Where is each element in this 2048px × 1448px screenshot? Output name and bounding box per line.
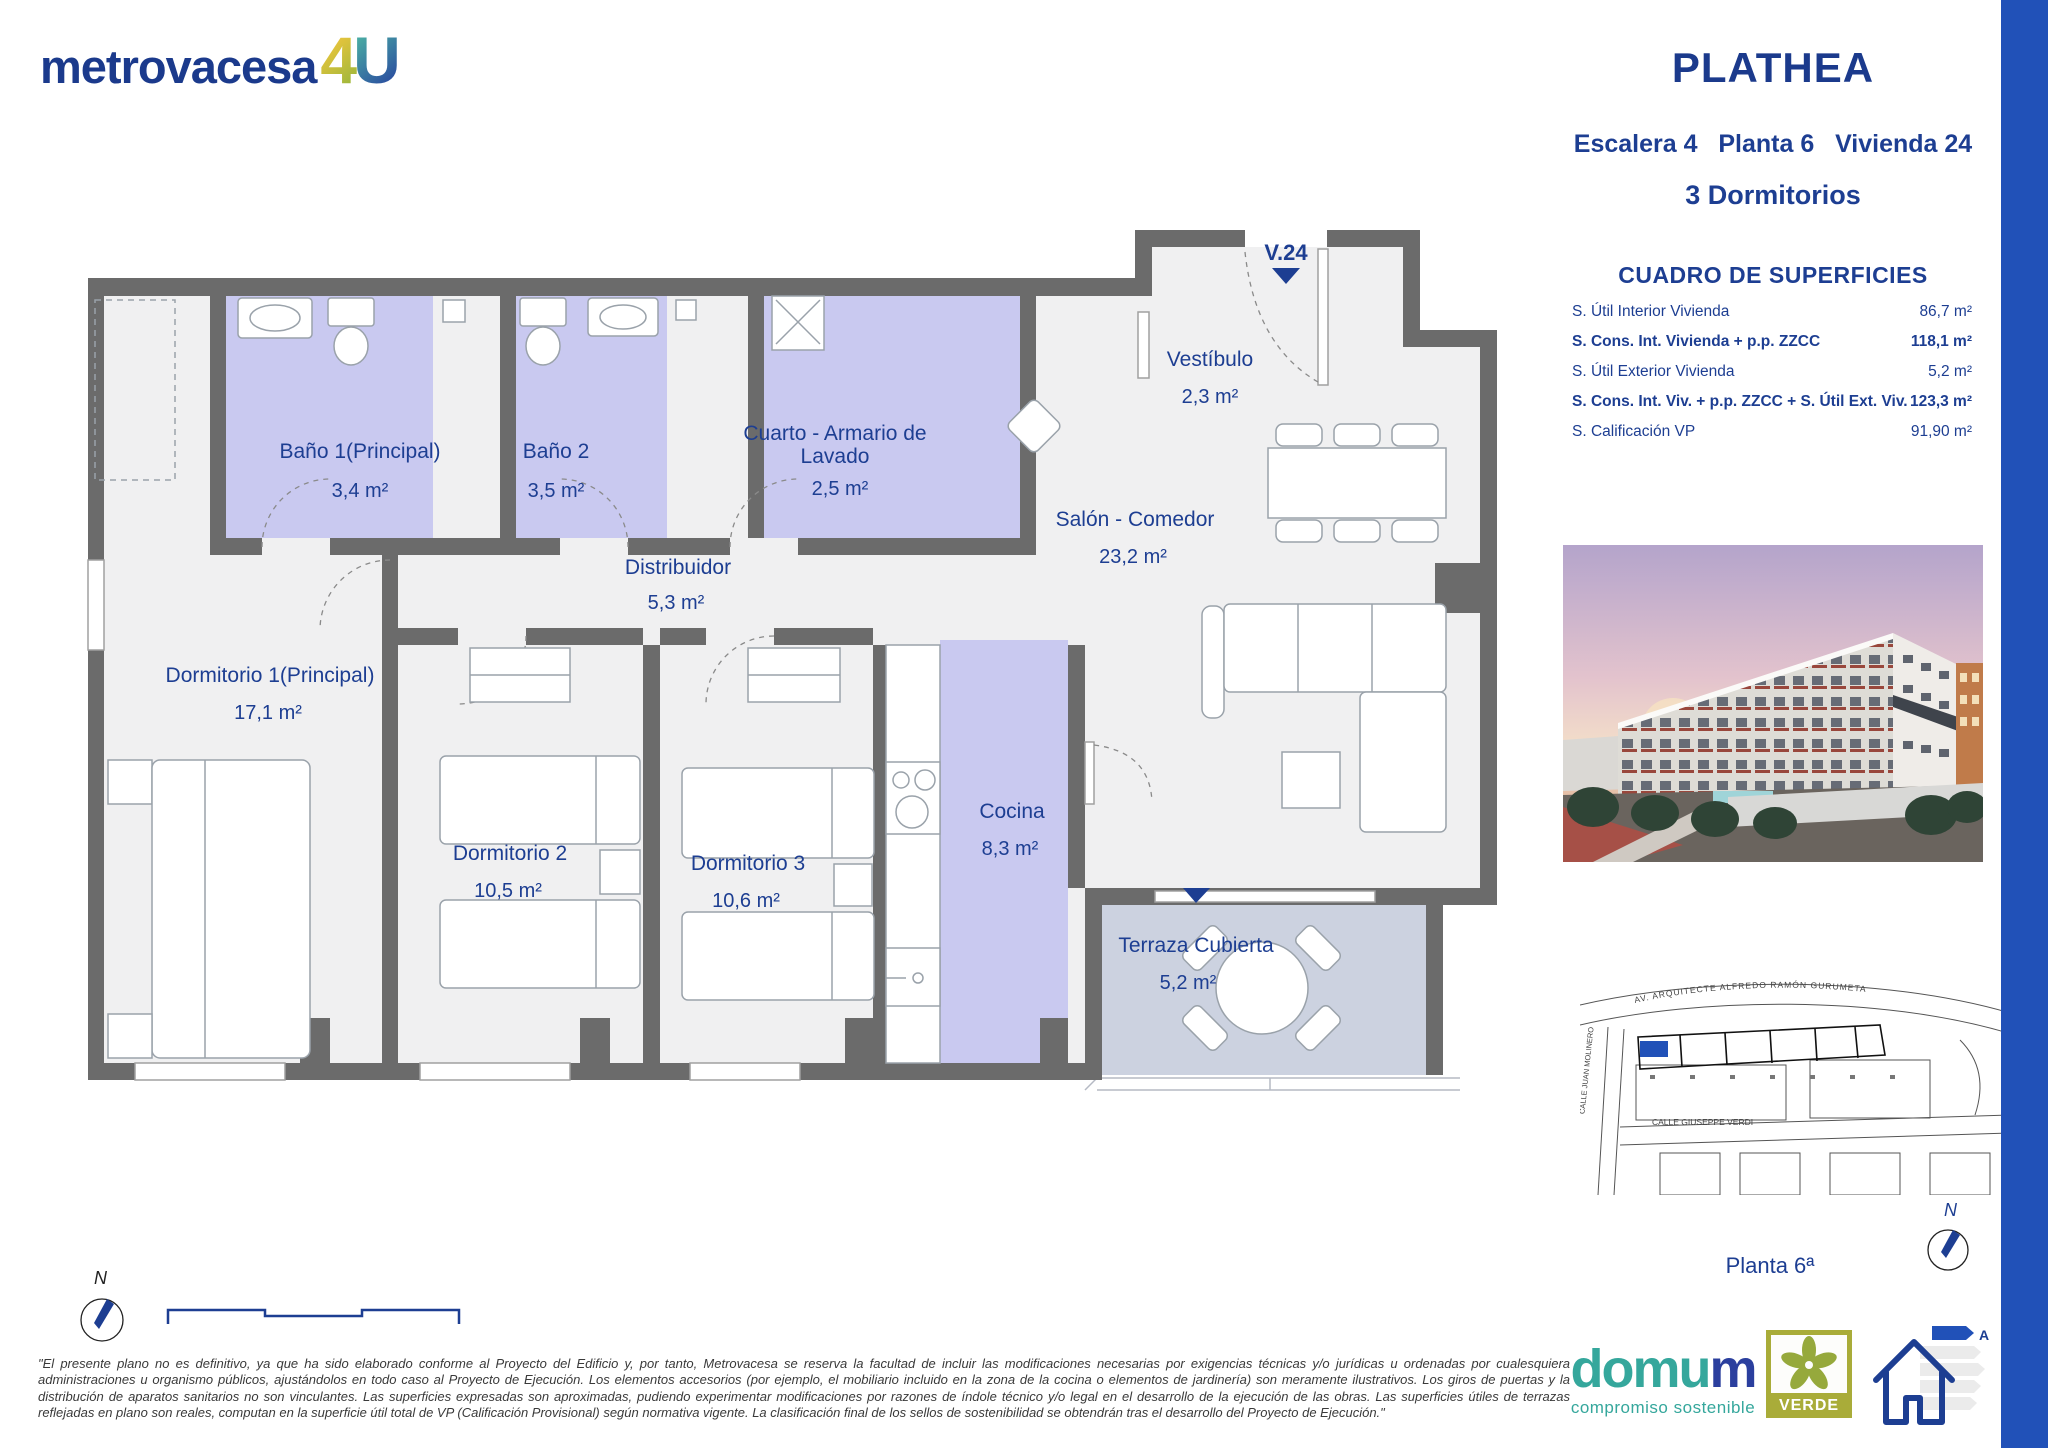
metrovacesa-logo: metrovacesa4U [40,22,401,98]
shower-drain [676,300,696,320]
legal-disclaimer: "El presente plano no es definitivo, ya … [38,1356,1570,1421]
logo-wordmark: metrovacesa [40,39,316,94]
street-label-left: CALLE JUAN MOLINERO [1580,1026,1596,1114]
coffee-table [1282,752,1340,808]
unit-identifier: Escalera 4 Planta 6 Vivienda 24 [1552,130,1994,159]
north-compass: N [1920,1200,1980,1280]
unit-highlight [1640,1041,1668,1057]
room-label-bedroom3: Dormitorio 3 [691,852,805,876]
surfaces-table-title: CUADRO DE SUPERFICIES [1572,262,1974,289]
building-photo [1563,545,1983,862]
room-area-kitchen: 8,3 m² [982,838,1039,861]
logo-u: U [353,22,401,98]
nightstand [108,760,152,804]
room-area-hall: 2,3 m² [1182,386,1239,409]
room-area-corridor: 5,3 m² [648,592,705,615]
svg-text:AV. ARQUITECTE ALFREDO RAMÓN G: AV. ARQUITECTE ALFREDO RAMÓN GURUMETA [1633,980,1867,1005]
room-area-living: 23,2 m² [1099,546,1167,569]
chair [1392,520,1438,542]
room-area-bedroom1: 17,1 m² [234,702,302,725]
logo-4: 4 [320,22,357,98]
room-area-bath1: 3,4 m² [332,480,389,503]
chair [1334,424,1380,446]
entry-door-label: V.24 [1264,240,1307,266]
surface-row: S. Calificación VP91,90 m² [1572,423,1974,445]
window-bedroom2 [420,1063,570,1080]
room-label-laundry: Cuarto - Armario de Lavado [728,422,942,468]
shower-drain [443,300,465,322]
floor-label: Planta 6ª [1660,1253,1880,1279]
north-label: N [94,1268,108,1288]
entry-door-leaf [1318,249,1328,385]
room-label-hall: Vestíbulo [1167,348,1253,372]
bed-single [440,900,640,988]
verde-leaf-icon [1771,1335,1847,1393]
room-area-bedroom3: 10,6 m² [712,890,780,913]
street-label-bottom: CALLE GIUSEPPE VERDI [1652,1117,1753,1127]
bedrooms-count: 3 Dormitorios [1572,180,1974,211]
sofa [1224,604,1446,692]
room-area-laundry: 2,5 m² [812,478,869,501]
toilet [328,298,374,326]
scale-bar [165,1298,475,1330]
room-label-living: Salón - Comedor [1056,508,1215,532]
surface-row: S. Útil Exterior Vivienda5,2 m² [1572,363,1974,385]
room-label-bedroom2: Dormitorio 2 [453,842,567,866]
north-label: N [1944,1200,1958,1220]
side-accent-bar [2001,0,2048,1448]
dining-table [1268,448,1446,518]
kitchen-door-leaf [1085,742,1094,804]
room-label-corridor: Distribuidor [625,556,731,580]
surface-row: S. Útil Interior Vivienda86,7 m² [1572,303,1974,325]
bed-double [152,760,310,1058]
room-label-terrace: Terraza Cubierta [1118,934,1273,958]
room-area-bedroom2: 10,5 m² [474,880,542,903]
room-area-terrace: 5,2 m² [1160,972,1217,995]
sofa-armrest [1202,606,1224,718]
chair [1392,424,1438,446]
bed-single [682,912,874,1000]
chair [1334,520,1380,542]
room-area-bath2: 3,5 m² [528,480,585,503]
energy-arrow-a [1932,1326,1974,1340]
page-title: PLATHEA [1572,44,1974,92]
window-bedroom3 [690,1063,800,1080]
site-plan: AV. ARQUITECTE ALFREDO RAMÓN GURUMETA CA… [1580,965,2010,1195]
bed-single [440,756,640,844]
room-label-kitchen: Cocina [979,800,1044,824]
window-bedroom1 [135,1063,285,1080]
sofa-chaise [1360,692,1446,832]
domum-tagline: compromiso sostenible [1560,1398,1766,1418]
street-label-avenue: AV. ARQUITECTE ALFREDO RAMÓN GURUMETA [1633,980,1867,1005]
room-label-bedroom1: Dormitorio 1(Principal) [166,664,375,688]
nightstand [108,1014,152,1058]
room-label-bath2: Baño 2 [523,440,590,464]
surface-row: S. Cons. Int. Viv. + p.p. ZZCC + S. Útil… [1572,393,1974,415]
surface-row: S. Cons. Int. Vivienda + p.p. ZZCC118,1 … [1572,333,1974,355]
domum-logo: domum compromiso sostenible [1560,1342,1766,1418]
plan-sheet: metrovacesa4U PLATHEA Escalera 4 Planta … [0,0,2048,1448]
verde-label: VERDE [1766,1397,1852,1415]
energy-rating-house-icon: A [1862,1324,2002,1428]
verde-badge: VERDE [1766,1330,1852,1418]
toilet [520,298,566,326]
bed-single [682,768,874,858]
window-side [88,560,104,650]
chair [1276,424,1322,446]
energy-letter: A [1979,1327,1989,1343]
nightstand [834,864,872,906]
hall-door-leaf [1138,312,1149,378]
room-label-bath1: Baño 1(Principal) [279,440,440,464]
chair [1276,520,1322,542]
nightstand [600,850,640,894]
plan-north-compass: N [70,1268,140,1352]
